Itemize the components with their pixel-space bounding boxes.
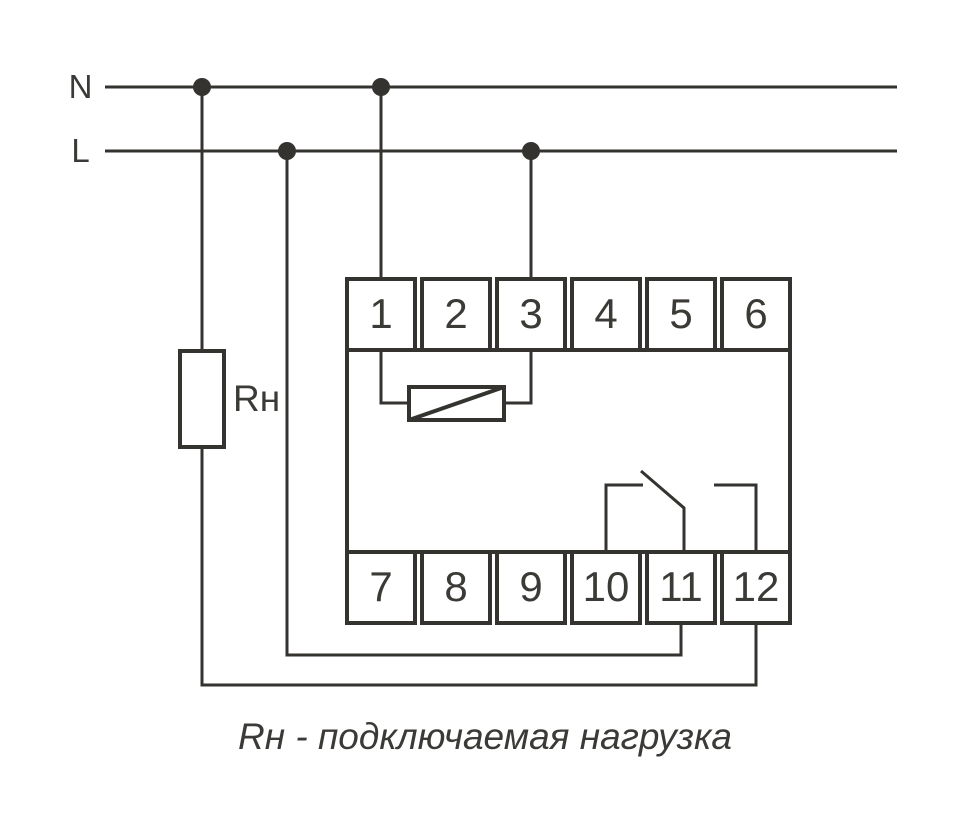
load-label: Rн: [233, 380, 280, 417]
neutral-label: N: [58, 70, 104, 103]
terminal-cell-10: 10: [570, 550, 642, 625]
wiring-diagram: N L Rн 1 2 3 4 5 6 7 8 9 10 11 12 Rн - п…: [0, 0, 970, 824]
internal-element-left-lead: [381, 350, 409, 403]
internal-element-right-lead: [504, 350, 531, 403]
relay-fixed-contact-10: [606, 485, 643, 552]
device-body-outline: [347, 350, 790, 552]
relay-fixed-contact-12: [714, 485, 756, 552]
wiring-lines: [0, 0, 970, 824]
terminal-cell-9: 9: [495, 550, 567, 625]
relay-moving-blade-11: [641, 471, 684, 552]
terminal-cell-2: 2: [420, 277, 492, 352]
terminal-cell-7: 7: [345, 550, 417, 625]
terminal-cell-8: 8: [420, 550, 492, 625]
line-label: L: [58, 134, 104, 167]
diagram-caption: Rн - подключаемая нагрузка: [0, 716, 970, 758]
terminal-cell-5: 5: [645, 277, 717, 352]
load-resistor-symbol: [180, 351, 224, 447]
terminal-row-bottom: 7 8 9 10 11 12: [345, 550, 792, 625]
terminal-cell-6: 6: [720, 277, 792, 352]
internal-element-diagonal: [409, 387, 504, 420]
terminal-cell-4: 4: [570, 277, 642, 352]
terminal-cell-1: 1: [345, 277, 417, 352]
terminal-row-top: 1 2 3 4 5 6: [345, 277, 792, 352]
terminal-cell-12: 12: [720, 550, 792, 625]
terminal-cell-11: 11: [645, 550, 717, 625]
terminal-cell-3: 3: [495, 277, 567, 352]
